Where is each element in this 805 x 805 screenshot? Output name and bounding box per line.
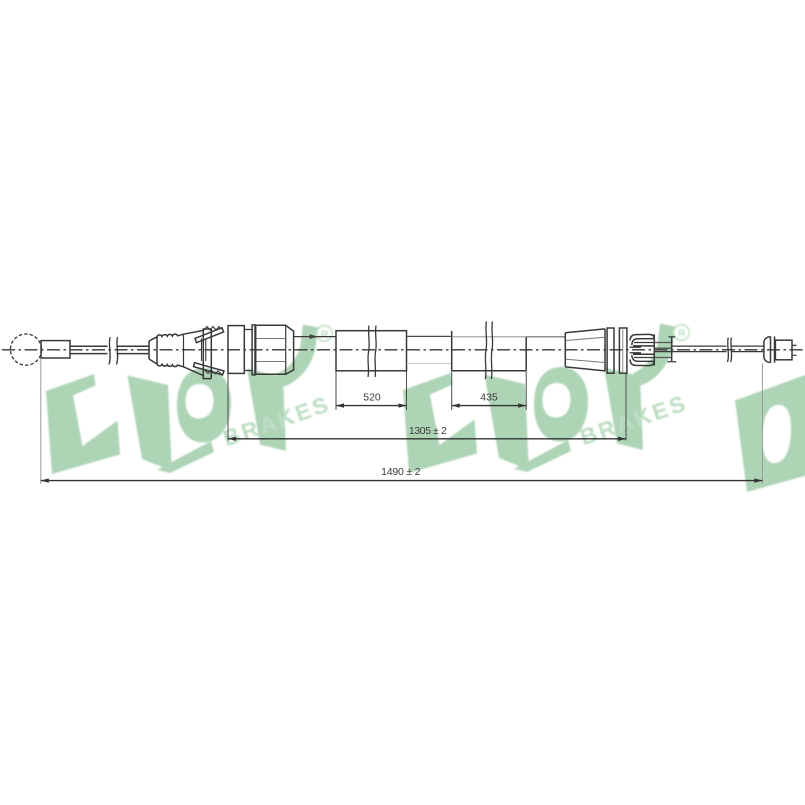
svg-text:1305 ± 2: 1305 ± 2 bbox=[409, 425, 447, 437]
svg-text:1490 ± 2: 1490 ± 2 bbox=[381, 466, 421, 478]
svg-text:520: 520 bbox=[363, 392, 381, 404]
svg-text:435: 435 bbox=[480, 392, 498, 404]
